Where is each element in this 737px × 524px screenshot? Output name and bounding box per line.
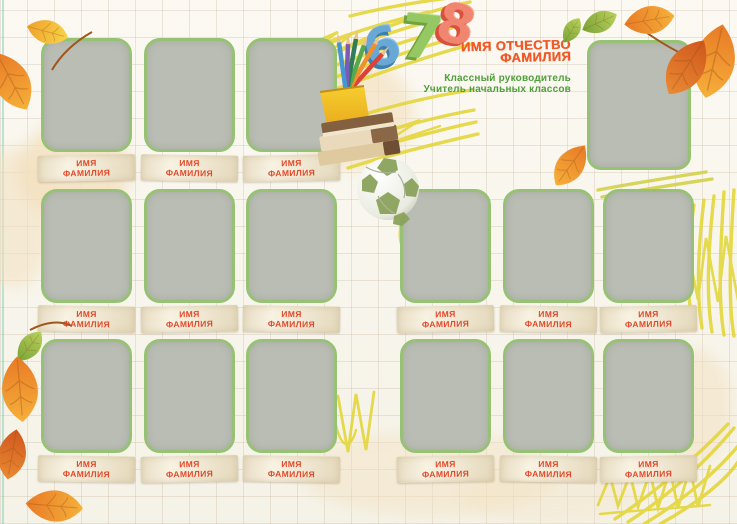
student-nameplate: ИМЯ ФАМИЛИЯ bbox=[38, 305, 135, 333]
student-photo-placeholder bbox=[400, 189, 491, 303]
teacher-role-line2: Учитель начальных классов bbox=[424, 85, 571, 96]
student-photo-placeholder bbox=[246, 339, 337, 453]
teacher-role-line1: Классный руководитель bbox=[424, 74, 571, 85]
student-nameplate: ИМЯ ФАМИЛИЯ bbox=[141, 154, 238, 182]
student-photo-placeholder bbox=[144, 189, 235, 303]
student-photo-slot: ИМЯ ФАМИЛИЯ bbox=[144, 339, 235, 485]
student-nameplate: ИМЯ ФАМИЛИЯ bbox=[243, 305, 340, 333]
student-nameplate: ИМЯ ФАМИЛИЯ bbox=[600, 305, 697, 333]
student-photo-placeholder bbox=[246, 38, 337, 152]
student-photo-slot: ИМЯ ФАМИЛИЯ bbox=[503, 339, 594, 485]
teacher-photo-slot bbox=[587, 40, 691, 170]
student-photo-placeholder bbox=[144, 339, 235, 453]
student-photo-slot: ИМЯ ФАМИЛИЯ bbox=[603, 189, 694, 335]
student-photo-slot: ИМЯ ФАМИЛИЯ bbox=[41, 339, 132, 485]
student-photo-placeholder bbox=[503, 339, 594, 453]
student-photo-slot: ИМЯ ФАМИЛИЯ bbox=[400, 189, 491, 335]
student-nameplate: ИМЯ ФАМИЛИЯ bbox=[243, 154, 340, 182]
student-nameplate: ИМЯ ФАМИЛИЯ bbox=[243, 455, 340, 483]
nameplate-last-name: ФАМИЛИЯ bbox=[63, 168, 111, 179]
teacher-role-heading: Классный руководитель Учитель начальных … bbox=[424, 74, 571, 95]
student-photo-placeholder bbox=[603, 339, 694, 453]
student-photo-slot: ИМЯ ФАМИЛИЯ bbox=[503, 189, 594, 335]
student-photo-placeholder bbox=[246, 189, 337, 303]
student-nameplate: ИМЯ ФАМИЛИЯ bbox=[141, 305, 238, 333]
student-photo-slot: ИМЯ ФАМИЛИЯ bbox=[144, 189, 235, 335]
student-photo-placeholder bbox=[400, 339, 491, 453]
student-photo-slot: ИМЯ ФАМИЛИЯ bbox=[41, 189, 132, 335]
student-photo-slot: ИМЯ ФАМИЛИЯ bbox=[41, 38, 132, 184]
student-photo-placeholder bbox=[41, 189, 132, 303]
student-nameplate: ИМЯ ФАМИЛИЯ bbox=[38, 455, 135, 483]
student-photo-placeholder bbox=[41, 339, 132, 453]
student-nameplate: ИМЯ ФАМИЛИЯ bbox=[141, 455, 238, 483]
student-photo-placeholder bbox=[503, 189, 594, 303]
student-nameplate: ИМЯ ФАМИЛИЯ bbox=[397, 455, 494, 483]
student-nameplate: ИМЯ ФАМИЛИЯ bbox=[500, 455, 597, 483]
student-photo-slot: ИМЯ ФАМИЛИЯ bbox=[400, 339, 491, 485]
student-photo-placeholder bbox=[41, 38, 132, 152]
student-nameplate: ИМЯ ФАМИЛИЯ bbox=[500, 305, 597, 333]
student-nameplate: ИМЯ ФАМИЛИЯ bbox=[38, 154, 135, 182]
student-photo-slot: ИМЯ ФАМИЛИЯ bbox=[246, 189, 337, 335]
student-nameplate: ИМЯ ФАМИЛИЯ bbox=[600, 455, 697, 483]
nameplate-first-name: ИМЯ bbox=[76, 158, 97, 168]
teacher-photo-placeholder bbox=[587, 40, 691, 170]
student-photo-slot: ИМЯ ФАМИЛИЯ bbox=[603, 339, 694, 485]
student-photo-slot: ИМЯ ФАМИЛИЯ bbox=[144, 38, 235, 184]
student-photo-placeholder bbox=[144, 38, 235, 152]
student-photo-placeholder bbox=[603, 189, 694, 303]
class-photo-template: ИМЯ ФАМИЛИЯ ИМЯ ФАМИЛИЯ ИМЯ ФАМИЛИЯ ИМЯ … bbox=[0, 0, 737, 524]
teacher-name-heading: ИМЯ ОТЧЕСТВО ФАМИЛИЯ bbox=[461, 39, 572, 65]
student-nameplate: ИМЯ ФАМИЛИЯ bbox=[397, 305, 494, 333]
student-photo-slot: ИМЯ ФАМИЛИЯ bbox=[246, 38, 337, 184]
student-photo-slot: ИМЯ ФАМИЛИЯ bbox=[246, 339, 337, 485]
